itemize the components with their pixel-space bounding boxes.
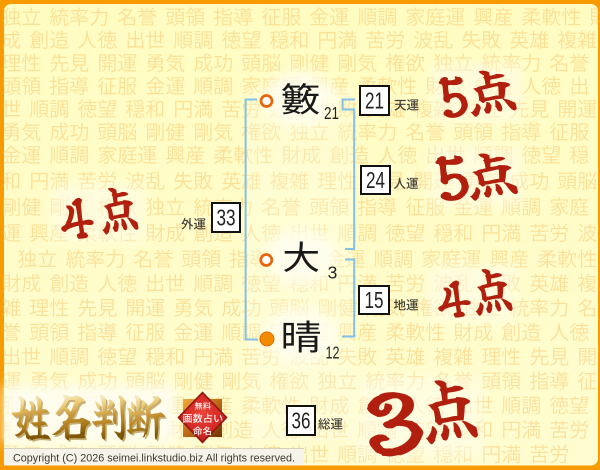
svg-text:15: 15 <box>365 287 384 313</box>
svg-text:36: 36 <box>292 408 311 434</box>
svg-text:33: 33 <box>217 205 236 231</box>
svg-text:24: 24 <box>366 167 385 193</box>
svg-text:12: 12 <box>326 343 340 363</box>
svg-text:21: 21 <box>365 88 384 114</box>
svg-text:3: 3 <box>328 263 338 283</box>
svg-text:Copyright (C) 2026 seimei.link: Copyright (C) 2026 seimei.linkstudio.biz… <box>13 453 295 465</box>
svg-text:21: 21 <box>324 103 339 123</box>
